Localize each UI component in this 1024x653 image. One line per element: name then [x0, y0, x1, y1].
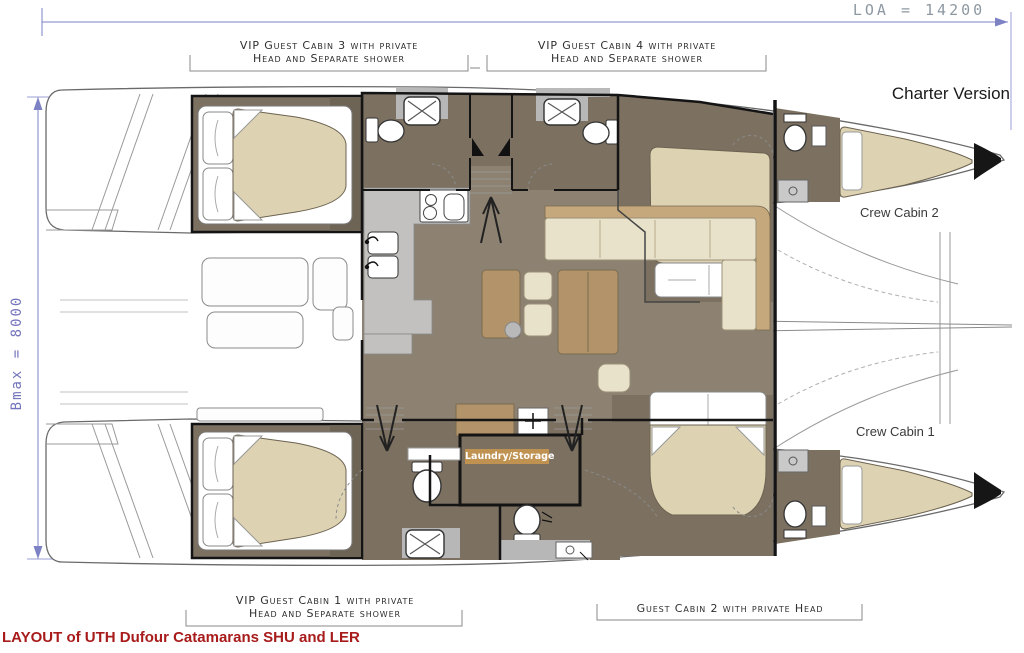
cockpit-aft-bench: [197, 408, 323, 421]
toilet-head2: [514, 505, 540, 535]
vip-cabin4-line2: Head and Separate shower: [486, 52, 768, 65]
vip-cabin1-label: VIP Guest Cabin 1 with private Head and …: [186, 594, 464, 620]
sofa-seat: [545, 218, 756, 260]
bed-vip1: [198, 432, 352, 550]
cockpit-bench: [207, 312, 303, 348]
bmax-dimension-label: Bmax = 8000: [9, 278, 27, 428]
laundry-storage-label: Laundry/Storage: [465, 449, 549, 464]
pillow: [203, 112, 233, 164]
toilet-crew1: [784, 501, 806, 527]
vip-cabin3-line1: VIP Guest Cabin 3 with private: [188, 39, 470, 52]
crew-cabin2-label: Crew Cabin 2: [860, 205, 939, 220]
vip-cabin4-label: VIP Guest Cabin 4 with private Head and …: [486, 39, 768, 65]
charter-version-label: Charter Version: [830, 84, 1010, 104]
crew-cabin1-label: Crew Cabin 1: [856, 424, 935, 439]
laundry-room: [460, 435, 580, 505]
vip-cabin1-line2: Head and Separate shower: [186, 607, 464, 620]
toilet-head4: [583, 120, 618, 144]
vip-cabin3-line2: Head and Separate shower: [188, 52, 470, 65]
guest-cabin2-label: Guest Cabin 2 with private Head: [597, 602, 863, 615]
toilet-head3: [366, 118, 404, 142]
vip-cabin1-line1: VIP Guest Cabin 1 with private: [186, 594, 464, 607]
floorplan-page: LOA = 14200 Bmax = 8000 Charter Version …: [0, 0, 1024, 653]
stool: [598, 364, 630, 392]
bed-guest2: [650, 392, 766, 515]
cockpit-table: [202, 258, 308, 306]
vip-cabin3-label: VIP Guest Cabin 3 with private Head and …: [188, 39, 470, 65]
cockpit: [197, 258, 353, 421]
pillow: [203, 168, 233, 220]
bow-bulkhead-port: [974, 143, 1001, 180]
toilet-head1: [413, 470, 441, 502]
bow-bulkhead-starboard: [974, 472, 1001, 509]
loa-dimension-label: LOA = 14200: [826, 1, 1012, 19]
bed-vip3: [198, 106, 352, 224]
vip-cabin4-line1: VIP Guest Cabin 4 with private: [486, 39, 768, 52]
galley-stove: [420, 190, 468, 222]
toilet-crew2: [784, 125, 806, 151]
layout-caption: LAYOUT of UTH Dufour Catamarans SHU and …: [2, 629, 360, 646]
